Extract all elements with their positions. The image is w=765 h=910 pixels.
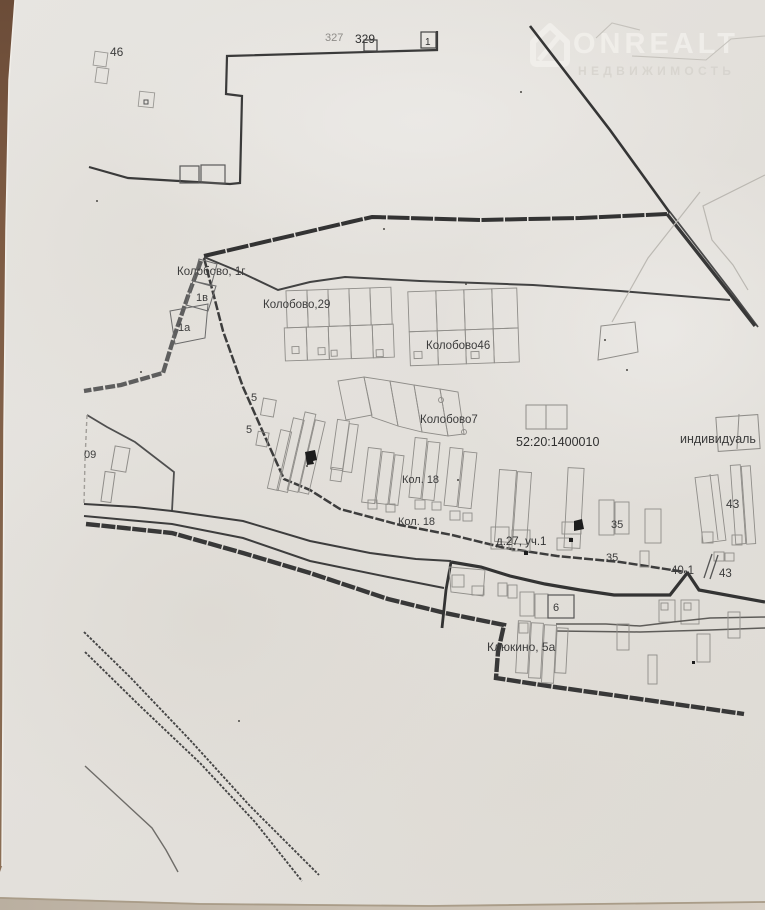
svg-text:40-1: 40-1 — [671, 565, 694, 577]
svg-text:Колобово7: Колобово7 — [420, 414, 478, 426]
svg-text:43: 43 — [726, 497, 740, 511]
svg-text:Клюкино, 5а: Клюкино, 5а — [487, 640, 556, 654]
svg-text:1: 1 — [425, 37, 431, 48]
svg-text:Колобово46: Колобово46 — [426, 340, 490, 352]
svg-text:43: 43 — [719, 568, 732, 580]
svg-text:5: 5 — [251, 392, 257, 404]
svg-text:НЕДВИЖИМОСТЬ: НЕДВИЖИМОСТЬ — [578, 64, 735, 78]
svg-text:Колобово,29: Колобово,29 — [263, 299, 330, 311]
svg-text:35: 35 — [611, 519, 623, 531]
svg-text:д.27, уч.1: д.27, уч.1 — [496, 536, 546, 548]
svg-text:327: 327 — [325, 32, 343, 44]
svg-text:52:20:1400010: 52:20:1400010 — [516, 435, 599, 449]
svg-text:329: 329 — [355, 32, 375, 46]
svg-text:1в: 1в — [196, 292, 208, 304]
svg-text:5: 5 — [246, 424, 252, 436]
svg-text:46: 46 — [110, 45, 124, 59]
svg-text:09: 09 — [84, 449, 96, 461]
svg-text:Колобово, 1г: Колобово, 1г — [177, 266, 245, 278]
svg-text:35: 35 — [606, 552, 618, 564]
svg-text:Кол. 18: Кол. 18 — [398, 516, 435, 528]
svg-text:1а: 1а — [178, 322, 191, 334]
svg-text:ONREALT: ONREALT — [573, 28, 739, 60]
svg-text:6: 6 — [553, 602, 559, 614]
svg-text:Кол. 18: Кол. 18 — [402, 474, 439, 486]
svg-text:индивидуаль: индивидуаль — [680, 432, 756, 446]
